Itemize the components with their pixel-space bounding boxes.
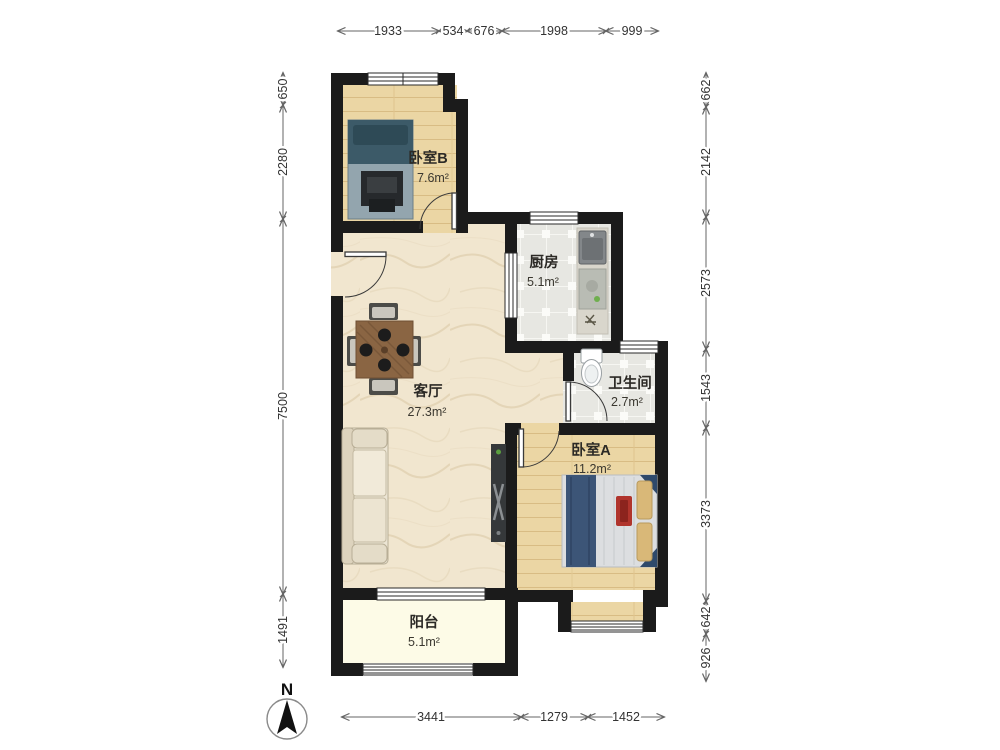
dim-bottom-2: 1279: [540, 710, 568, 724]
dim-left-4: 1491: [276, 616, 290, 644]
balcony-floor: [343, 600, 505, 663]
dim-top-1: 1933: [374, 24, 402, 38]
dim-right-1: 662: [699, 80, 713, 101]
compass: N: [267, 680, 307, 739]
living-room-label: 客厅: [413, 382, 443, 400]
bedroom-b-area: 7.6m²: [417, 171, 449, 185]
dim-top-5: 999: [622, 24, 643, 38]
kitchen-area: 5.1m²: [527, 275, 559, 289]
balcony-label: 阳台: [410, 613, 439, 631]
bedroom-b-window: [368, 73, 438, 85]
dim-bottom-3: 1452: [612, 710, 640, 724]
living-room-area: 27.3m²: [408, 405, 447, 419]
balcony-area: 5.1m²: [408, 635, 440, 649]
dim-left-2: 2280: [276, 148, 290, 176]
dim-left-3: 7500: [276, 392, 290, 420]
balcony-window: [363, 664, 473, 675]
bedroom-a-bed: [562, 475, 657, 567]
bathroom-area: 2.7m²: [611, 395, 643, 409]
bedroom-a-area: 11.2m²: [573, 462, 611, 476]
dim-right-3: 2573: [699, 269, 713, 297]
floor-plan-page: 卧室B 7.6m² 厨房 5.1m² 客厅 27.3m² 卫生间 2.7m² 卧…: [0, 0, 1000, 750]
kitchen-window: [530, 212, 578, 224]
dim-right-6: 642: [699, 607, 713, 628]
bedroom-a-label: 卧室A: [571, 441, 611, 459]
dim-top-3: 676: [474, 24, 495, 38]
dim-top-4: 1998: [540, 24, 568, 38]
tv-cabinet: [491, 444, 506, 542]
sofa: [342, 428, 388, 564]
dim-bottom-1: 3441: [417, 710, 445, 724]
kitchen-doorway: [505, 253, 517, 318]
bathroom-label: 卫生间: [608, 374, 652, 392]
dim-right-7: 926: [699, 648, 713, 669]
compass-north-label: N: [281, 680, 293, 699]
floor-plan-canvas: 卧室B 7.6m² 厨房 5.1m² 客厅 27.3m² 卫生间 2.7m² 卧…: [0, 0, 1000, 750]
dim-left-1: 650: [276, 79, 290, 100]
bedroom-b-bed: [348, 120, 413, 219]
dim-top-2: 534: [443, 24, 464, 38]
bathroom-window: [620, 341, 658, 353]
toilet: [581, 349, 602, 387]
kitchen-counter: [577, 228, 608, 334]
bedroom-a-bay-window: [571, 621, 643, 632]
kitchen-label: 厨房: [530, 253, 559, 271]
dim-right-4: 1543: [699, 374, 713, 402]
balcony-sliding-door: [377, 588, 485, 600]
compass-needle-icon: [277, 700, 297, 734]
dim-right-2: 2142: [699, 148, 713, 176]
bedroom-b-label: 卧室B: [408, 149, 447, 167]
dim-right-5: 3373: [699, 500, 713, 528]
